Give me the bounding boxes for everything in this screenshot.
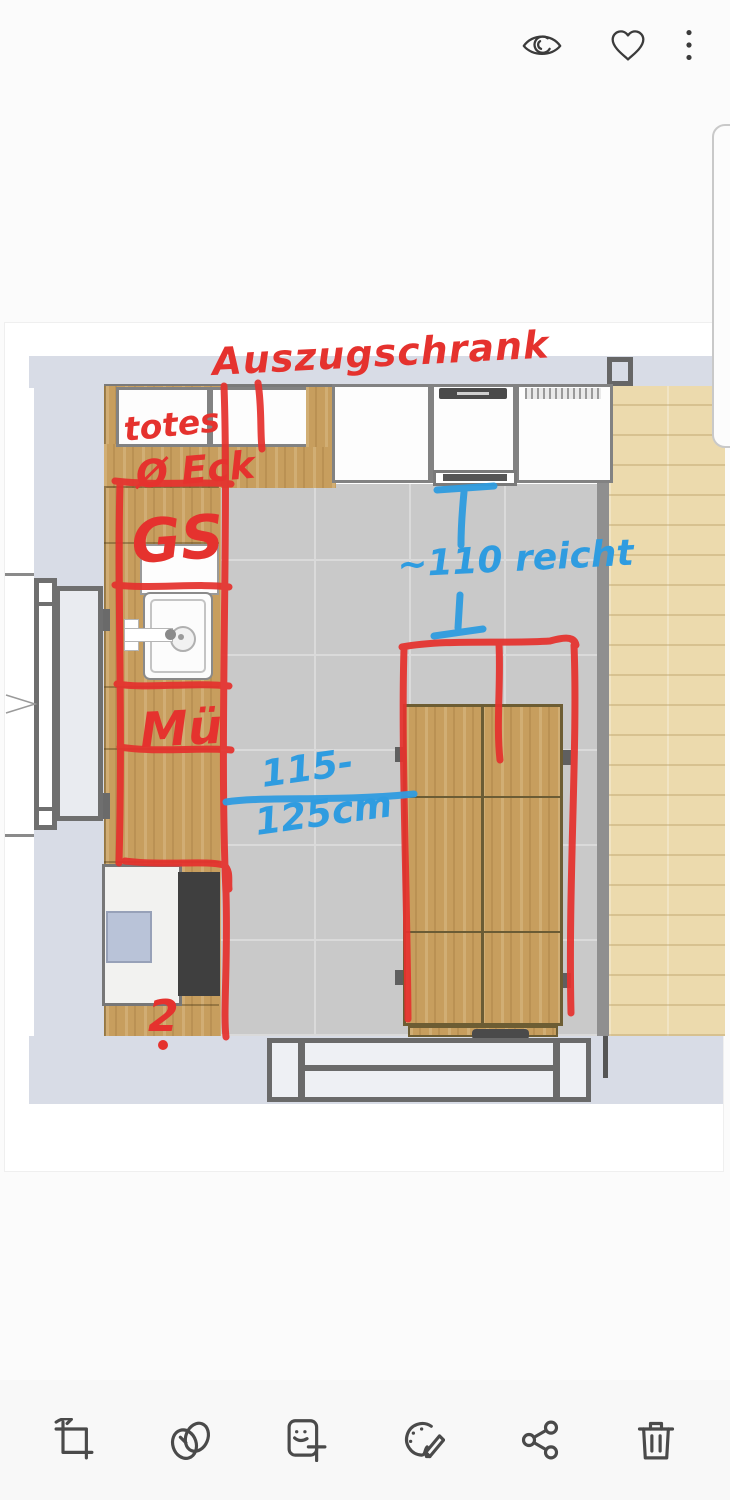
- cabinet-wood-gap: [306, 387, 332, 447]
- delete-trash-icon[interactable]: [634, 1418, 678, 1462]
- table-side-tab: [563, 973, 571, 988]
- cooktop-bar: [443, 474, 507, 481]
- window-frame-bar: [36, 807, 55, 811]
- counter-divider: [104, 861, 219, 863]
- counter-divider: [104, 748, 219, 750]
- window-glass-panel: [55, 586, 103, 821]
- island-table-seam: [481, 704, 484, 1026]
- editor-toolbar: [0, 1380, 730, 1500]
- cabinet-handle: [102, 793, 110, 819]
- draw-palette-icon[interactable]: [401, 1418, 445, 1462]
- counter-divider: [104, 686, 219, 688]
- vision-eye-icon[interactable]: [518, 21, 566, 69]
- share-icon[interactable]: [518, 1418, 562, 1462]
- appliance-dark: [178, 872, 220, 996]
- table-side-tab: [563, 750, 571, 765]
- crop-rotate-icon[interactable]: [52, 1418, 96, 1462]
- vent-grill: [525, 388, 601, 399]
- upper-cabinet: [116, 387, 210, 447]
- window-frame-strip: [34, 578, 57, 830]
- corner-countertop: [104, 444, 336, 488]
- tall-cabinet: [332, 384, 431, 483]
- adjacent-room-floor: [609, 386, 725, 1036]
- dishwasher-front: [140, 544, 219, 595]
- wall-post: [607, 357, 633, 386]
- top-action-bar: [0, 0, 730, 90]
- table-side-tab: [395, 747, 403, 762]
- filters-icon[interactable]: [168, 1418, 212, 1462]
- more-options-icon[interactable]: [676, 21, 702, 69]
- scrollbar-thumb[interactable]: [712, 124, 730, 448]
- counter-divider: [104, 486, 219, 488]
- appliance-window: [106, 911, 152, 963]
- stickers-text-icon[interactable]: [285, 1418, 329, 1462]
- window-pane-bottom: [300, 1066, 558, 1102]
- favorite-heart-icon[interactable]: [604, 21, 652, 69]
- faucet-head: [165, 629, 176, 640]
- photo-floor-plan[interactable]: Auszugschrank totes Ø Eck GS Mü 2 ~110 r…: [4, 322, 724, 1172]
- upper-cabinet: [210, 387, 309, 447]
- window-frame-bar: [36, 602, 55, 606]
- cabinet-handle: [102, 609, 110, 631]
- window-post-right: [555, 1038, 591, 1102]
- window-exterior: [5, 573, 34, 837]
- door-frame-line: [603, 1036, 608, 1078]
- island-table-seam: [403, 796, 563, 798]
- wall-right-divider: [597, 481, 609, 1036]
- window-post-left: [267, 1038, 303, 1102]
- sink-drain-dot: [178, 634, 184, 640]
- extractor-hood-detail: [457, 392, 489, 395]
- table-side-tab: [395, 970, 403, 985]
- gallery-app-screen: Auszugschrank totes Ø Eck GS Mü 2 ~110 r…: [0, 0, 730, 1500]
- island-table-seam: [403, 931, 563, 933]
